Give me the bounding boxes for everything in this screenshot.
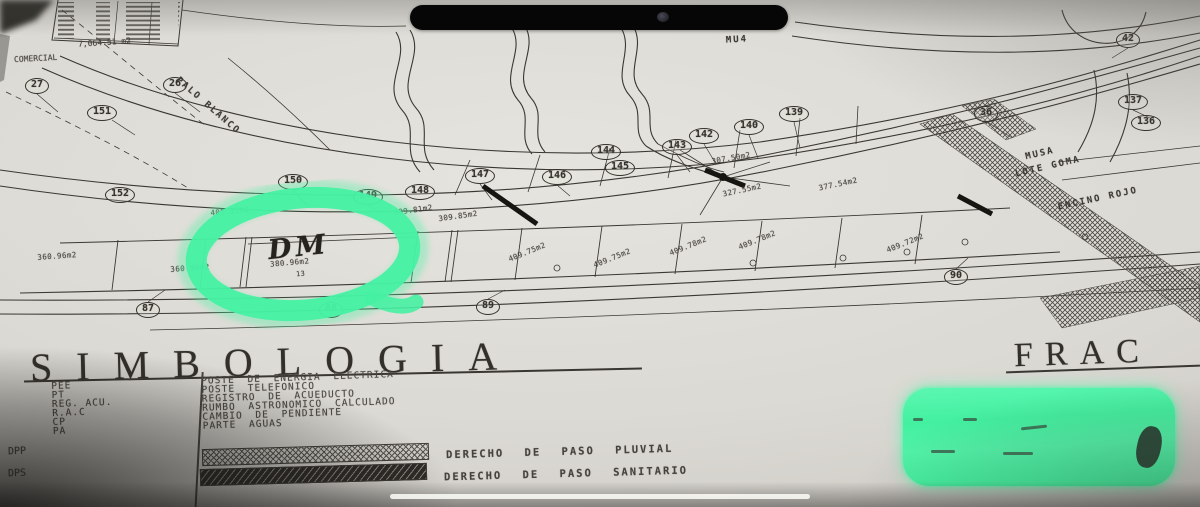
home-indicator[interactable] (390, 494, 810, 499)
camera-notch (410, 5, 788, 30)
camera-dot (657, 12, 669, 22)
phone-screenshot: 2726151152150149148147146145144143142140… (0, 0, 1200, 507)
highlighter-blob (903, 388, 1175, 486)
ink-mark-under-highlight (1133, 424, 1165, 470)
